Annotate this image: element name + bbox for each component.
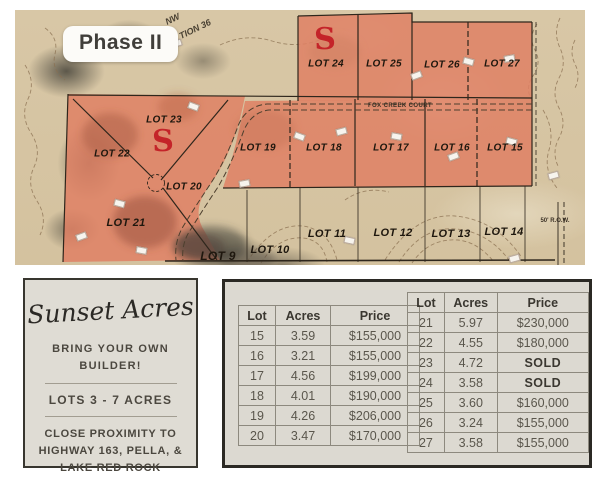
info-panel: Sunset Acres BRING YOUR OWN BUILDER! LOT… bbox=[23, 278, 198, 468]
table-row: 215.97$230,000 bbox=[408, 313, 589, 333]
lot-label-lot-10: LOT 10 bbox=[250, 244, 289, 256]
table-row: 224.55$180,000 bbox=[408, 333, 589, 353]
acres-cell: 3.21 bbox=[276, 346, 331, 366]
acres-cell: 5.97 bbox=[444, 313, 497, 333]
table-row: 234.72SOLD bbox=[408, 353, 589, 373]
lot-cell: 23 bbox=[408, 353, 445, 373]
tagline-lot-sizes: LOTS 3 - 7 ACRES bbox=[31, 393, 190, 407]
lot-label-lot-20: LOT 20 bbox=[166, 182, 202, 193]
table-header-cell: Lot bbox=[239, 306, 276, 326]
table-row: 163.21$155,000 bbox=[239, 346, 420, 366]
lot-label-lot-27: LOT 27 bbox=[484, 59, 520, 70]
lot-cell: 21 bbox=[408, 313, 445, 333]
price-cell: $155,000 bbox=[497, 413, 588, 433]
price-cell: $230,000 bbox=[497, 313, 588, 333]
table-header-row: LotAcresPrice bbox=[408, 293, 589, 313]
tagline-bring-your-own-builder: BRING YOUR OWN BUILDER! bbox=[37, 341, 184, 374]
lot-cell: 20 bbox=[239, 426, 276, 446]
lot-label-lot-13: LOT 13 bbox=[431, 228, 470, 240]
lot-label-lot-25: LOT 25 bbox=[366, 59, 402, 70]
acres-cell: 4.72 bbox=[444, 353, 497, 373]
lot-label-lot-14: LOT 14 bbox=[484, 226, 523, 238]
acres-cell: 3.58 bbox=[444, 433, 497, 453]
table-row: 253.60$160,000 bbox=[408, 393, 589, 413]
acres-cell: 3.60 bbox=[444, 393, 497, 413]
lot-label-lot-16: LOT 16 bbox=[434, 143, 470, 154]
table-row: 203.47$170,000 bbox=[239, 426, 420, 446]
table-header-cell: Price bbox=[497, 293, 588, 313]
table-row: 174.56$199,000 bbox=[239, 366, 420, 386]
price-cell: $180,000 bbox=[497, 333, 588, 353]
lot-label-lot-11: LOT 11 bbox=[308, 228, 346, 240]
table-header-cell: Acres bbox=[276, 306, 331, 326]
lot-label-lot-19: LOT 19 bbox=[240, 143, 276, 154]
table-row: 194.26$206,000 bbox=[239, 406, 420, 426]
lot-cell: 19 bbox=[239, 406, 276, 426]
phase-badge: Phase II bbox=[63, 26, 178, 62]
lot-label-lot-15: LOT 15 bbox=[487, 143, 523, 154]
price-tables-panel: LotAcresPrice 153.59$155,000163.21$155,0… bbox=[222, 279, 592, 468]
table-header-cell: Acres bbox=[444, 293, 497, 313]
tagline-proximity: CLOSE PROXIMITY TO HIGHWAY 163, PELLA, &… bbox=[31, 426, 190, 477]
table-header-cell: Lot bbox=[408, 293, 445, 313]
lot-label-lot-24: LOT 24 bbox=[308, 59, 344, 70]
acres-cell: 4.01 bbox=[276, 386, 331, 406]
plat-map: Phase II NW TION 36 FOX CREEK COURT 50' … bbox=[15, 10, 585, 265]
lot-cell: 22 bbox=[408, 333, 445, 353]
price-cell: SOLD bbox=[497, 373, 588, 393]
lot-cell: 17 bbox=[239, 366, 276, 386]
acres-cell: 3.47 bbox=[276, 426, 331, 446]
price-cell: $155,000 bbox=[497, 433, 588, 453]
table-row: 243.58SOLD bbox=[408, 373, 589, 393]
lot-cell: 15 bbox=[239, 326, 276, 346]
table-row: 153.59$155,000 bbox=[239, 326, 420, 346]
table-row: 273.58$155,000 bbox=[408, 433, 589, 453]
lot-label-lot-26: LOT 26 bbox=[424, 60, 460, 71]
sold-marker: S bbox=[314, 25, 337, 56]
lot-cell: 26 bbox=[408, 413, 445, 433]
acres-cell: 4.56 bbox=[276, 366, 331, 386]
road-label-fox-creek-court: FOX CREEK COURT bbox=[368, 103, 432, 109]
sold-marker: S bbox=[152, 127, 175, 158]
divider bbox=[45, 416, 177, 417]
lot-label-lot-17: LOT 17 bbox=[373, 143, 409, 154]
acres-cell: 3.58 bbox=[444, 373, 497, 393]
lot-cell: 18 bbox=[239, 386, 276, 406]
table-row: 263.24$155,000 bbox=[408, 413, 589, 433]
price-table-lots-21-27: LotAcresPrice 215.97$230,000224.55$180,0… bbox=[407, 292, 589, 453]
table-header-row: LotAcresPrice bbox=[239, 306, 420, 326]
brand-logo-script: Sunset Acres bbox=[24, 292, 196, 330]
divider bbox=[45, 383, 177, 384]
lot-cell: 25 bbox=[408, 393, 445, 413]
table-row: 184.01$190,000 bbox=[239, 386, 420, 406]
right-of-way-label: 50' R.O.W. bbox=[540, 218, 569, 224]
lot-cell: 27 bbox=[408, 433, 445, 453]
lot-label-lot-12: LOT 12 bbox=[373, 227, 412, 239]
lot-label-lot-21: LOT 21 bbox=[106, 217, 145, 229]
price-table-lots-15-20: LotAcresPrice 153.59$155,000163.21$155,0… bbox=[238, 305, 420, 446]
acres-cell: 3.24 bbox=[444, 413, 497, 433]
lot-cell: 24 bbox=[408, 373, 445, 393]
lot-label-lot-9: LOT 9 bbox=[200, 249, 236, 263]
lot-label-lot-22: LOT 22 bbox=[94, 149, 130, 160]
acres-cell: 4.26 bbox=[276, 406, 331, 426]
acres-cell: 3.59 bbox=[276, 326, 331, 346]
price-cell: $160,000 bbox=[497, 393, 588, 413]
lot-label-lot-18: LOT 18 bbox=[306, 143, 342, 154]
price-cell: SOLD bbox=[497, 353, 588, 373]
lot-cell: 16 bbox=[239, 346, 276, 366]
acres-cell: 4.55 bbox=[444, 333, 497, 353]
